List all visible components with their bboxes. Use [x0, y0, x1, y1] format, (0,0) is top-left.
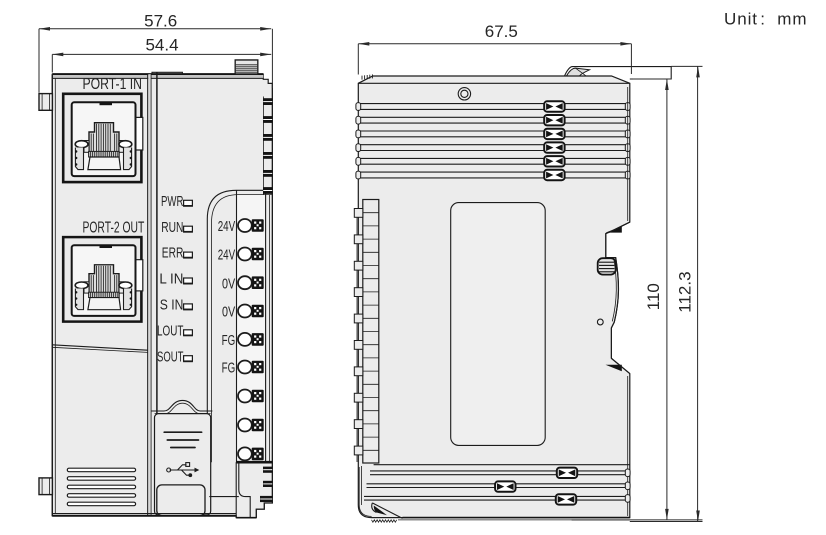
svg-text:RUN: RUN — [161, 219, 183, 236]
svg-text:PORT-2 OUT: PORT-2 OUT — [83, 219, 145, 236]
svg-text:SOUT: SOUT — [157, 348, 183, 365]
svg-text:PORT-1 IN: PORT-1 IN — [83, 76, 143, 93]
svg-text:112.3: 112.3 — [675, 271, 694, 312]
svg-text:0V: 0V — [222, 275, 235, 292]
svg-text:LOUT: LOUT — [157, 322, 183, 339]
svg-text:54.4: 54.4 — [145, 35, 178, 54]
svg-text:PWR: PWR — [161, 193, 184, 210]
svg-text:S IN: S IN — [160, 297, 184, 314]
svg-text:24V: 24V — [218, 218, 236, 235]
svg-text:FG: FG — [222, 360, 236, 377]
svg-text:FG: FG — [222, 332, 236, 349]
svg-text:L IN: L IN — [159, 271, 183, 288]
svg-text:110: 110 — [644, 283, 663, 310]
svg-text:ERR: ERR — [162, 245, 184, 262]
svg-text:0V: 0V — [222, 304, 235, 321]
svg-text:24V: 24V — [218, 247, 236, 264]
svg-text:67.5: 67.5 — [485, 22, 518, 41]
svg-text:57.6: 57.6 — [144, 11, 177, 30]
svg-text:Unit : mm: Unit : mm — [724, 9, 807, 28]
